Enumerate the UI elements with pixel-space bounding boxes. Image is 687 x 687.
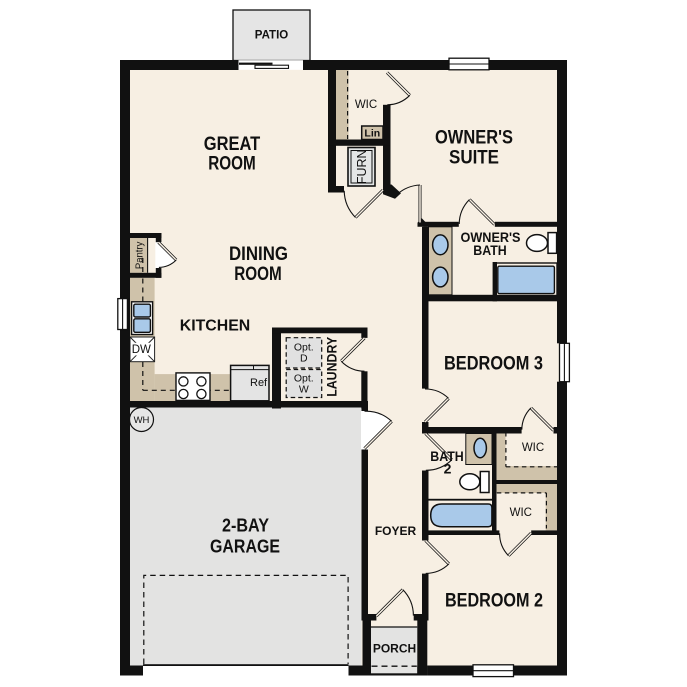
svg-text:DINING: DINING [229,244,288,265]
svg-text:BEDROOM 2: BEDROOM 2 [445,591,543,612]
svg-text:PATIO: PATIO [255,29,288,41]
svg-text:WIC: WIC [522,442,544,454]
svg-text:FURN: FURN [355,149,369,184]
svg-text:GREAT: GREAT [204,134,261,155]
svg-text:WH: WH [134,415,150,426]
svg-text:PORCH: PORCH [373,642,416,656]
svg-text:KITCHEN: KITCHEN [180,318,251,335]
svg-text:WIC: WIC [355,99,377,111]
svg-text:2: 2 [444,461,452,477]
svg-text:2-BAY: 2-BAY [222,515,270,536]
svg-text:GARAGE: GARAGE [210,536,280,557]
svg-text:BATH: BATH [473,243,507,258]
svg-text:LAUNDRY: LAUNDRY [325,337,340,397]
svg-text:OWNER'S: OWNER'S [435,128,513,149]
svg-text:Pantry: Pantry [134,241,146,269]
svg-text:DW: DW [132,344,151,356]
svg-text:Lin: Lin [364,128,380,140]
svg-text:WIC: WIC [510,507,532,519]
svg-text:Ref: Ref [250,377,268,389]
svg-text:ROOM: ROOM [234,264,282,285]
svg-text:ROOM: ROOM [208,154,256,175]
svg-text:FOYER: FOYER [375,524,417,538]
svg-text:W: W [299,383,309,395]
svg-text:D: D [300,353,308,365]
svg-text:BEDROOM 3: BEDROOM 3 [444,354,543,375]
svg-text:SUITE: SUITE [449,148,499,169]
